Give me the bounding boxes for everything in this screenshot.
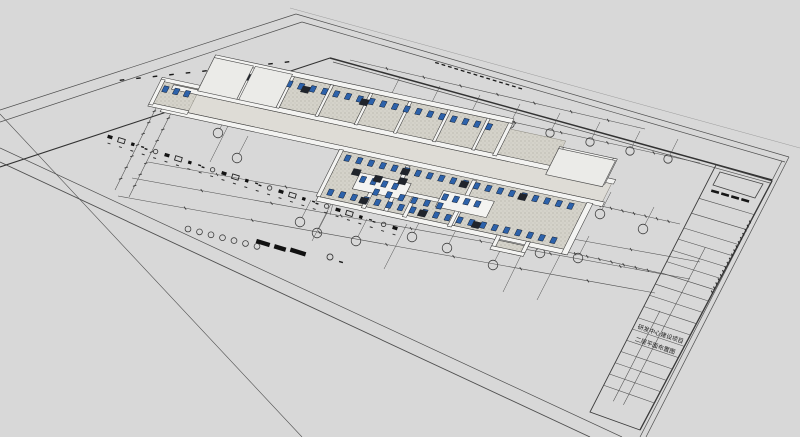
3d-scene-canvas[interactable]: 研发中心建设项目 二层平面布置图 xyxy=(0,0,800,437)
cad-viewport[interactable]: 研发中心建设项目 二层平面布置图 xyxy=(0,0,800,437)
